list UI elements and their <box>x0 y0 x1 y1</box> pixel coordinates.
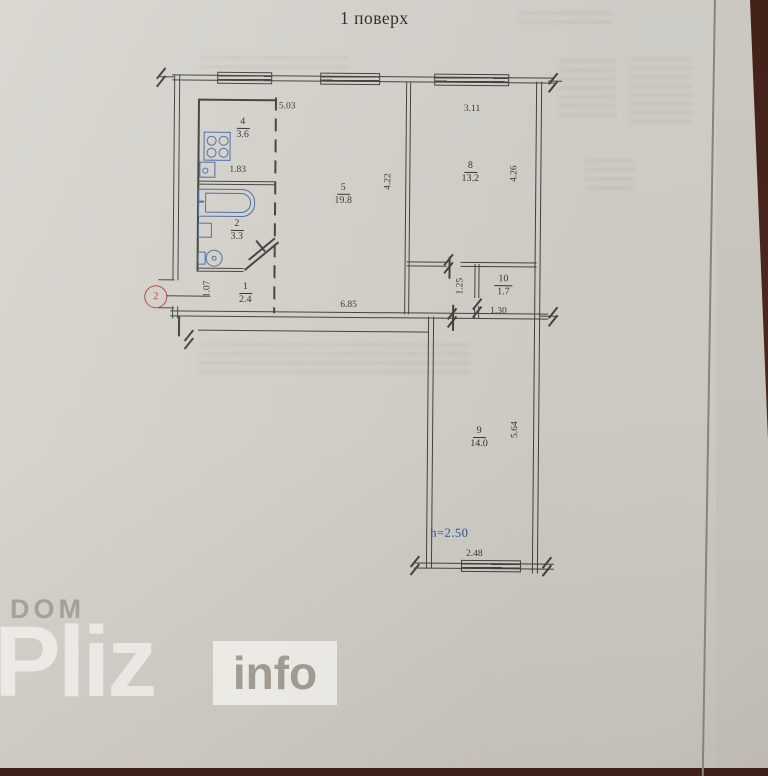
room-number: 5 <box>337 182 350 195</box>
room-label-lower-room: 9 14.0 <box>464 425 494 450</box>
room-label-bedroom: 8 13.2 <box>455 160 485 185</box>
room-area: 14.0 <box>464 438 494 450</box>
wall-bath-bottom <box>197 268 244 272</box>
dim-storage-width: 1.30 <box>490 306 507 316</box>
partition-dashed <box>273 97 277 313</box>
room-label-kitchen: 4 3.6 <box>228 116 258 141</box>
room-label-bathroom: 2 3.3 <box>222 218 252 243</box>
dim-kitchen-inner: 1.83 <box>229 165 246 175</box>
room-number: 2 <box>230 218 243 231</box>
dim-bedroom-top: 3.11 <box>464 104 480 114</box>
wall-break-mark <box>470 299 486 317</box>
wall-break-mark <box>442 255 458 273</box>
wall-kitchen-bath <box>197 181 275 186</box>
room-area: 3.6 <box>228 129 258 141</box>
room-area: 3.3 <box>222 231 252 243</box>
dim-living-height: 4.22 <box>383 173 393 190</box>
floorplan-drawing: 2 4 3.6 2 3.3 1 2.4 5 19.8 8 13.2 10 1.7… <box>138 58 583 602</box>
room-number: 4 <box>236 116 249 129</box>
dim-lower-width: 2.48 <box>466 549 483 559</box>
wall-break-mark <box>445 309 461 327</box>
entry-opening-tick-bottom <box>158 307 174 309</box>
dim-bottom-width: 6.85 <box>340 300 357 310</box>
dim-kitchen-top: 5.03 <box>279 101 296 111</box>
paper-edge-line <box>702 0 716 776</box>
dim-lower-height: 5.64 <box>510 421 520 438</box>
window-lower-room <box>461 560 521 573</box>
room-number: 8 <box>464 160 477 173</box>
watermark-info-box: info <box>213 641 337 705</box>
stove-icon <box>203 132 230 161</box>
entrance-marker: 2 <box>144 285 167 308</box>
wall-right <box>532 82 542 574</box>
wall-break-mark <box>182 330 198 348</box>
neighbor-outline <box>198 330 428 333</box>
ceiling-height-note: h=2.50 <box>430 526 468 541</box>
watermark-info: info <box>233 646 317 700</box>
dim-entry-width: 1.07 <box>202 281 212 298</box>
window-bedroom <box>434 74 509 87</box>
room-number: 1 <box>239 281 252 294</box>
room-area: 19.8 <box>328 195 358 207</box>
neighbor-stub <box>178 316 180 336</box>
bleed-through-smudge <box>585 160 635 190</box>
toilet-bowl-icon <box>206 250 223 267</box>
entry-opening-tick-top <box>158 279 174 281</box>
room-label-living: 5 19.8 <box>328 182 358 207</box>
wall-left-upper <box>172 74 180 280</box>
room-number: 9 <box>473 425 486 438</box>
wall-break-mark <box>408 556 424 574</box>
room-label-hallway: 1 2.4 <box>230 281 260 306</box>
bleed-through-smudge <box>518 12 613 26</box>
photographed-floorplan-sheet: 1 поверх <box>0 0 768 768</box>
room-number: 10 <box>494 273 512 286</box>
wall-room5-room8 <box>404 82 411 314</box>
bathtub-icon <box>198 189 255 217</box>
floor-title: 1 поверх <box>340 8 409 29</box>
wall-break-mark <box>154 68 170 86</box>
window-kitchen <box>217 72 272 84</box>
toilet-tank-icon <box>198 252 206 265</box>
kitchen-sink-icon <box>199 162 215 178</box>
room-area: 1.7 <box>488 286 518 298</box>
room-area: 2.4 <box>230 294 260 306</box>
room-label-storage: 10 1.7 <box>488 273 518 298</box>
washbasin-icon <box>198 223 212 238</box>
window-living <box>320 73 380 86</box>
wall-break-mark <box>540 558 556 576</box>
wall-room8-bottom-b <box>461 262 537 268</box>
watermark-dom: DOM <box>10 594 85 625</box>
bleed-through-smudge <box>630 58 692 126</box>
room-area: 13.2 <box>455 173 485 185</box>
dim-bedroom-height: 4.26 <box>509 165 519 182</box>
wall-break-mark <box>546 308 562 326</box>
dim-corridor-width: 1.25 <box>455 278 465 295</box>
wall-break-mark <box>546 74 562 92</box>
wall-storage-left-upper <box>474 264 479 298</box>
wall-kitchen-top <box>198 99 276 101</box>
